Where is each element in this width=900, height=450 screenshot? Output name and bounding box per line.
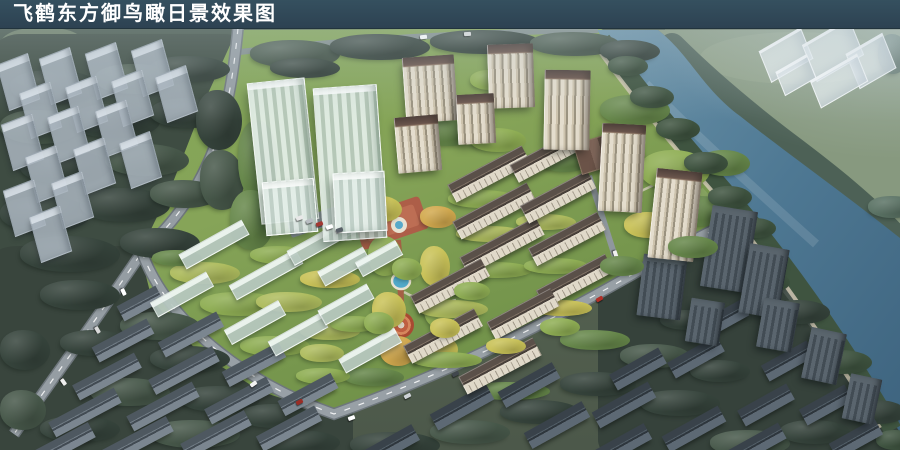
page-title: 飞鹤东方御鸟瞰日景效果图 xyxy=(0,4,277,25)
tree-cluster xyxy=(668,236,718,258)
tree-cluster xyxy=(454,282,490,300)
tree-cluster xyxy=(430,318,460,338)
tree-cluster xyxy=(364,312,394,334)
tree-cluster xyxy=(300,344,344,362)
foreground-tree-layer xyxy=(0,0,900,450)
title-bar: 飞鹤东方御鸟瞰日景效果图 xyxy=(0,0,900,29)
rendering-viewport: 飞鹤东方御鸟瞰日景效果图 xyxy=(0,0,900,450)
tree-cluster xyxy=(540,318,580,336)
tree-cluster xyxy=(486,338,526,354)
tree-cluster xyxy=(392,258,422,280)
tree-cluster xyxy=(600,256,644,276)
